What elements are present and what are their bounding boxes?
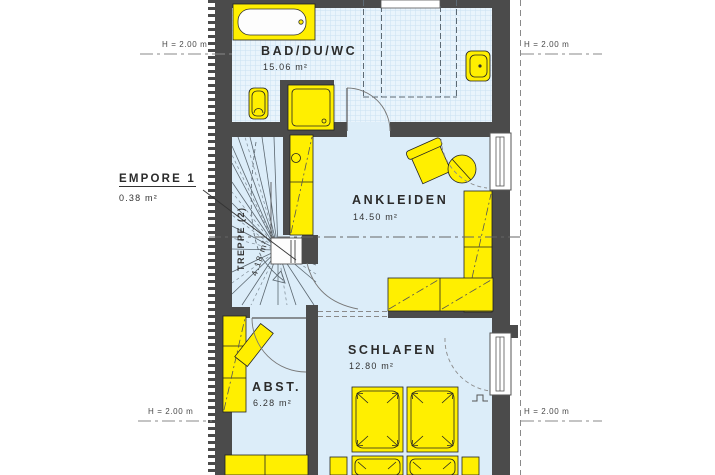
window-ankleiden [490, 133, 511, 190]
floor-plan: BAD/DU/WC 15.06 m² ANKLEIDEN 14.50 m² SC… [0, 0, 715, 475]
height-label-top-right: H = 2.00 m [524, 40, 569, 49]
floor-plan-svg [0, 0, 715, 475]
room-label-schlafen: SCHLAFEN [348, 343, 437, 357]
height-label-top-left: H = 2.00 m [162, 40, 207, 49]
room-area-schlafen: 12.80 m² [349, 361, 394, 371]
dormer-window [381, 0, 440, 8]
toilet-icon [249, 88, 268, 119]
room-label-empore: EMPORE 1 [119, 173, 196, 187]
height-label-bottom-left: H = 2.00 m [148, 407, 193, 416]
height-label-bottom-right: H = 2.00 m [524, 407, 569, 416]
room-label-abst: ABST. [252, 380, 301, 394]
empore-landing [271, 238, 302, 264]
room-area-empore: 0.38 m² [119, 193, 158, 203]
stair-cabinet-icon [290, 135, 313, 235]
room-label-treppe: TREPPE (2) [236, 206, 246, 271]
room-area-abst: 6.28 m² [253, 398, 292, 408]
stool-icon [448, 155, 476, 183]
bathtub-icon [233, 4, 315, 40]
shower-icon [288, 85, 334, 130]
room-area-ankleiden: 14.50 m² [353, 212, 398, 222]
room-label-ankleiden: ANKLEIDEN [352, 193, 448, 207]
window-schlafen [490, 333, 511, 395]
room-label-bad: BAD/DU/WC [261, 44, 357, 58]
sink-icon [466, 51, 490, 81]
room-area-bad: 15.06 m² [263, 62, 308, 72]
